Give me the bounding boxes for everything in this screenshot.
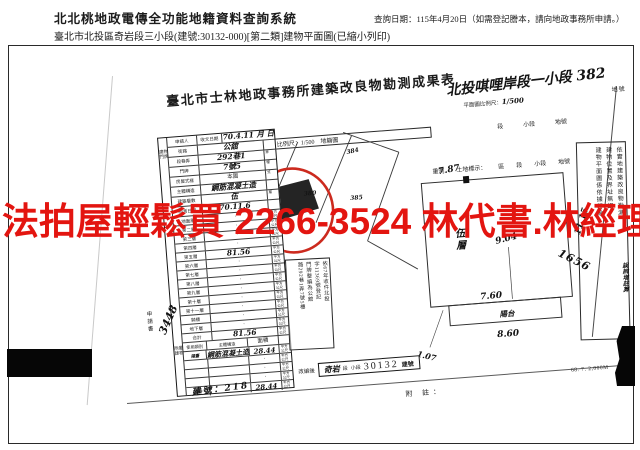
table-cell: 平方公尺	[273, 272, 286, 281]
table-cell: 平方公尺	[276, 317, 289, 326]
dim-bottom: 7.60	[480, 291, 503, 303]
table-cell: 平方公尺	[280, 362, 293, 371]
table-cell: 式	[265, 170, 278, 180]
note-label: 附 註：	[405, 386, 444, 399]
renumber-seg-hw: 奇岩	[323, 363, 340, 375]
doorplate-renumber-stamp: 依67年收件北投 字11369號登記 門牌整編為公舘 路292巷1弄7號5樓	[285, 257, 335, 350]
dim-balcony: 8.60	[497, 328, 520, 340]
plan-top-mark	[463, 176, 470, 183]
table-cell: 平方公尺	[281, 380, 294, 390]
table-cell: 平方公尺	[275, 299, 288, 308]
scanned-document: 臺北市士林地政事務所建築改良物勘測成果表 北投唭哩岸段一小段 382 平面圖比例…	[111, 45, 634, 444]
parcel-no-label: 地號	[611, 84, 626, 94]
form-print-code: 68. 7. 2,000M	[571, 365, 609, 374]
table-cell: 平方公尺	[273, 281, 286, 290]
table-cell	[263, 140, 276, 150]
query-date: 查詢日期：115年4月20日（如需登記謄本，請向地政事務所申請。）	[374, 13, 624, 25]
plan-scale-label: 平面圖比例尺：	[463, 100, 502, 109]
handwritten-cert-note: 誤辨增註算	[619, 262, 628, 292]
scan-frame: 臺北市士林地政事務所建築改良物勘測成果表 北投唭哩岸段一小段 382 平面圖比例…	[8, 45, 634, 444]
table-cell: 平方公尺	[279, 353, 292, 362]
parcel-number: 384	[346, 147, 360, 157]
table-cell: 層	[266, 190, 279, 200]
table-cell: 平方公尺	[280, 371, 293, 380]
application-side-label: 申請書	[144, 311, 154, 334]
survey-table: 建物門牌 附屬建物 申請人收文日期70.4.11 月 日街路公舘段巷弄292巷1…	[157, 129, 295, 397]
table-cell: 平方公尺	[276, 308, 289, 317]
balcony-label: 陽台	[499, 309, 515, 319]
renumber-seg: 段	[342, 364, 348, 371]
table-cell: 平方公尺	[272, 263, 285, 272]
land-col: 地號	[555, 116, 568, 126]
handwritten-section-name: 北投唭哩岸段一小段 382	[445, 62, 606, 100]
plan-scale-value: 1/500	[501, 95, 524, 106]
land-col: 段	[497, 121, 504, 130]
system-title: 北北桃地政電傳全功能地籍資料查詢系統	[54, 8, 297, 27]
renumber-small-seg: 小段	[350, 363, 361, 371]
dim-top: 7.87	[437, 163, 461, 177]
plan-scale-note: 平面圖比例尺：1/500	[463, 95, 524, 109]
table-cell: 樓	[264, 160, 277, 170]
land-col: 小段	[523, 119, 536, 129]
watermark-text: 法拍屋輕鬆買 2266-3524 林代書.林經理	[2, 201, 640, 243]
table-rows: 申請人收文日期70.4.11 月 日街路公舘段巷弄292巷1弄門牌7號5樓房屋式…	[167, 130, 294, 397]
parcel-number: 380	[304, 190, 318, 198]
section-renumber-stamp: 改編後 奇岩 段 小段 30132 建號	[298, 355, 420, 378]
document-subtitle: 臺北市北投區奇岩段三小段(建號:30132-000)[第二類]建物平面圖(已縮小…	[54, 28, 390, 43]
renumber-suffix: 建號	[401, 358, 414, 368]
table-cell	[266, 180, 279, 190]
survey-form-title: 臺北市士林地政事務所建築改良物勘測成果表	[165, 69, 456, 110]
table-cell: 28.44	[251, 381, 282, 392]
renumber-label: 改編後	[298, 366, 315, 375]
scan-artifact-bar	[7, 349, 92, 377]
registry-printout-page: 北北桃地政電傳全功能地籍資料查詢系統 查詢日期：115年4月20日（如需登記謄本…	[0, 0, 640, 450]
table-cell: 平方公尺	[271, 245, 284, 254]
table-cell: 平方公尺	[274, 290, 287, 299]
renumber-box: 奇岩 段 小段 30132 建號	[317, 355, 420, 377]
table-cell: 弄	[263, 150, 276, 160]
renumber-number: 30132	[363, 358, 399, 372]
land-header-row1: 段 小段 地號	[497, 116, 568, 130]
table-cell: 平方公尺	[271, 254, 284, 263]
